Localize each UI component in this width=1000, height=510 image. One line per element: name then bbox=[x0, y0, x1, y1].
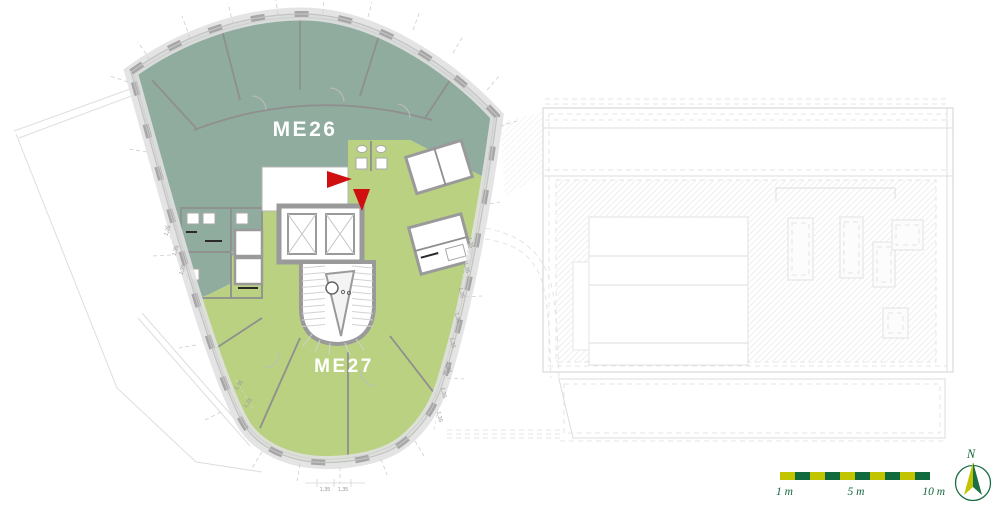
neighbor-building-roof bbox=[447, 99, 953, 441]
scale-bar-segment bbox=[825, 472, 840, 480]
dimension-label: 1,35 bbox=[435, 411, 443, 423]
scale-bar-segment bbox=[855, 472, 870, 480]
north-label: N bbox=[966, 447, 976, 461]
north-arrow: N bbox=[956, 447, 991, 501]
scale-label-10m: 10 m bbox=[922, 486, 945, 498]
unit-me27-label: ME27 bbox=[314, 356, 374, 377]
roof-structure-large bbox=[573, 217, 748, 365]
scale-bar-segment bbox=[780, 472, 795, 480]
scale-label-1m: 1 m bbox=[776, 486, 793, 498]
scale-bar-segment bbox=[900, 472, 915, 480]
floor-plan-canvas: 1,35 1,35 1,35 1,35 1,35 1,35 1,35 1,35 … bbox=[0, 0, 1000, 510]
scale-bar-segment bbox=[915, 472, 930, 480]
scale-bar-segment bbox=[810, 472, 825, 480]
scale-bar-segment bbox=[840, 472, 855, 480]
unit-me26-label: ME26 bbox=[273, 118, 338, 141]
elevators bbox=[279, 206, 362, 262]
neighbor-lower-band bbox=[559, 379, 945, 441]
scale-bar-segment bbox=[795, 472, 810, 480]
scale-bar-segment bbox=[870, 472, 885, 480]
scale-label-5m: 5 m bbox=[848, 486, 865, 498]
scale-bar-segment bbox=[885, 472, 900, 480]
scale-bar: 1 m 5 m 10 m bbox=[776, 472, 945, 498]
stair-core-circle bbox=[326, 282, 338, 294]
dimension-label: 1,35 bbox=[338, 487, 349, 493]
floor-plan-drawing: 1,35 1,35 1,35 1,35 1,35 1,35 1,35 1,35 … bbox=[0, 0, 1000, 510]
dimension-label: 1,35 bbox=[320, 487, 331, 493]
